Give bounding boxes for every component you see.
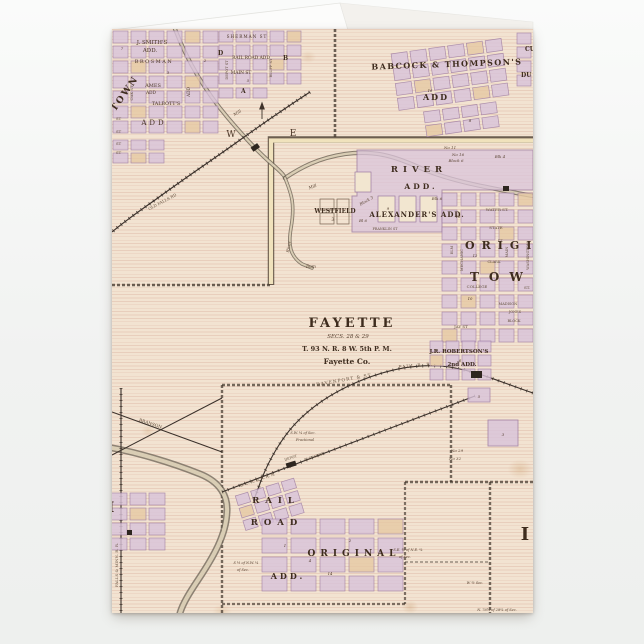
label-depot: DEPOT xyxy=(284,454,298,462)
label-blk6: Blk 6 xyxy=(431,196,443,201)
label-cu: CU xyxy=(525,46,533,53)
label-college-st: COLLEGE xyxy=(467,284,488,289)
label-rail: RAIL xyxy=(252,496,300,506)
label-original-bottom: ORIGINAL xyxy=(308,549,401,559)
label-dam: Dam xyxy=(305,264,316,269)
label-st-2: ST xyxy=(116,129,122,134)
label-blk4: Blk 4 xyxy=(494,154,506,159)
label-st-3: ST xyxy=(116,141,122,146)
svg-text:15: 15 xyxy=(456,214,461,219)
label-bl6: Bl 6 xyxy=(358,218,367,223)
label-smiths-add: J. SMITH'S xyxy=(136,40,168,46)
label-madison: MADISON xyxy=(499,302,518,306)
label-frac-2: Fractional xyxy=(295,438,314,442)
branson-roads xyxy=(112,398,222,455)
svg-text:2: 2 xyxy=(348,538,352,543)
label-brosman: BROSMAN xyxy=(135,59,174,65)
label-st-1: ST xyxy=(116,116,122,121)
svg-text:4: 4 xyxy=(308,558,312,563)
north-arrow-icon xyxy=(260,103,264,119)
svg-text:12: 12 xyxy=(473,253,478,258)
svg-text:17: 17 xyxy=(498,238,503,243)
label-college-st-2: ST. xyxy=(524,285,530,290)
label-smiths-add-2: ADD. xyxy=(142,48,158,54)
label-no11: No 11 xyxy=(443,145,456,150)
label-mechanic-st: MECHANIC xyxy=(460,249,464,271)
label-original-town-2: TOWN xyxy=(470,270,533,284)
fayette-plat-map: J. SMITH'S ADD. BROSMAN TOWN OAK ST AMES… xyxy=(112,29,533,613)
label-du: DU xyxy=(521,72,532,79)
label-jay-st: JAY ST xyxy=(453,324,468,329)
label-w-half: W ½ Sec. xyxy=(467,580,484,585)
label-babcock-add: ADD xyxy=(422,92,449,102)
label-st-4: ST xyxy=(116,150,122,155)
label-fayette-title: FAYETTE xyxy=(309,316,396,331)
label-bluff-st: BLUFF ST xyxy=(269,58,273,77)
label-note-se: S.E. ¼ of N.E. ¼ xyxy=(393,547,423,552)
babcock-addition-grid xyxy=(391,38,513,140)
product-photo-background: J. SMITH'S ADD. BROSMAN TOWN OAK ST AMES… xyxy=(0,0,644,644)
label-davenport-rr-2: PAUL R. R. xyxy=(399,363,434,371)
label-branson: BRANSON xyxy=(138,418,163,430)
label-elm-st: ELM xyxy=(450,245,454,254)
label-river-add: RIVER xyxy=(391,165,447,175)
label-washington-st: WASHINGTON xyxy=(526,242,530,270)
label-letter-a: A xyxy=(240,88,246,95)
label-note-sw: S ½ of N.W. ¼ xyxy=(233,560,259,565)
label-robertsons-2: 2nd ADD. xyxy=(447,362,476,368)
label-add-bottom: ADD. xyxy=(270,571,306,581)
label-main-vert: MAIN xyxy=(505,247,509,258)
label-jones: JONES xyxy=(508,310,522,314)
label-depot-st: DEPOT ST xyxy=(225,60,229,80)
label-talbotts-add: ADD xyxy=(140,119,166,127)
label-ames: AMES xyxy=(144,83,161,89)
label-westfield: WESTFIELD xyxy=(313,208,355,215)
label-sherman-st: SHERMAN ST xyxy=(227,34,268,39)
label-alexanders-add: ALEXANDER'S ADD. xyxy=(368,210,464,219)
label-n76: N. 76¾ of 28¼ of Sec. xyxy=(476,607,517,612)
label-fayette-secs: SECS. 28 & 29 xyxy=(327,334,369,340)
label-letter-e: E xyxy=(290,129,297,139)
svg-text:14: 14 xyxy=(328,571,333,576)
fold-left-panel xyxy=(112,3,348,30)
label-letter-b: B xyxy=(283,55,288,62)
label-partial-title-right: I xyxy=(521,524,529,545)
label-railroad-add: RAIL ROAD ADD xyxy=(232,56,270,61)
label-block6: Block 6 xyxy=(447,158,464,163)
label-note-sw-2: of Sec. xyxy=(237,568,249,572)
label-mill-east: Mill xyxy=(307,183,318,191)
label-no32: No 32 xyxy=(448,456,462,461)
svg-text:10: 10 xyxy=(468,296,473,301)
greeting-card-front[interactable]: J. SMITH'S ADD. BROSMAN TOWN OAK ST AMES… xyxy=(112,29,533,613)
svg-text:16: 16 xyxy=(428,88,433,93)
southwest-town-grid xyxy=(112,493,165,550)
label-talbotts: TALBOTT'S xyxy=(152,101,180,107)
label-frac-1: S.W. ¼ of Sec. xyxy=(290,430,315,435)
label-river-add-2: ADD. xyxy=(403,182,437,191)
svg-text:2: 2 xyxy=(203,58,207,63)
label-note-se-2: of Sec. xyxy=(399,555,411,559)
label-letter-w: W xyxy=(226,130,236,140)
label-mill-west: Mill xyxy=(232,108,243,117)
label-clark-st: CLARK xyxy=(487,260,500,264)
label-water-st: WATER ST. xyxy=(486,207,509,212)
label-fayette-twp: T. 93 N. R. 8 W. 5th P. M. xyxy=(302,345,392,353)
label-block-word: BLOCK xyxy=(507,319,520,323)
label-partial-title-left: I xyxy=(112,500,114,516)
label-elevator: ELEVATOR xyxy=(304,452,324,462)
label-no16: No 16 xyxy=(451,152,465,157)
label-franklin-st: FRANKLIN ST xyxy=(372,227,398,231)
label-letter-d: D xyxy=(218,50,223,57)
svg-text:1: 1 xyxy=(284,543,286,548)
label-robertsons: J.R. ROBERTSON'S xyxy=(429,349,489,355)
label-westfield-3: 3 xyxy=(331,217,334,223)
label-fayette-co: Fayette Co. xyxy=(324,357,371,366)
label-road: ROAD xyxy=(251,518,303,528)
fold-right-panel xyxy=(340,3,533,30)
label-no29: No 29 xyxy=(450,448,464,453)
label-state-st: STATE xyxy=(489,225,503,230)
label-main-st: MAIN ST xyxy=(231,71,252,76)
label-add-vertical: ADD xyxy=(186,86,191,97)
label-oak-st: OAK ST xyxy=(129,85,134,100)
label-falls-minn-rr: FALLS & MINN. R. R. xyxy=(114,543,119,587)
label-ames-add: ADD xyxy=(145,90,156,95)
